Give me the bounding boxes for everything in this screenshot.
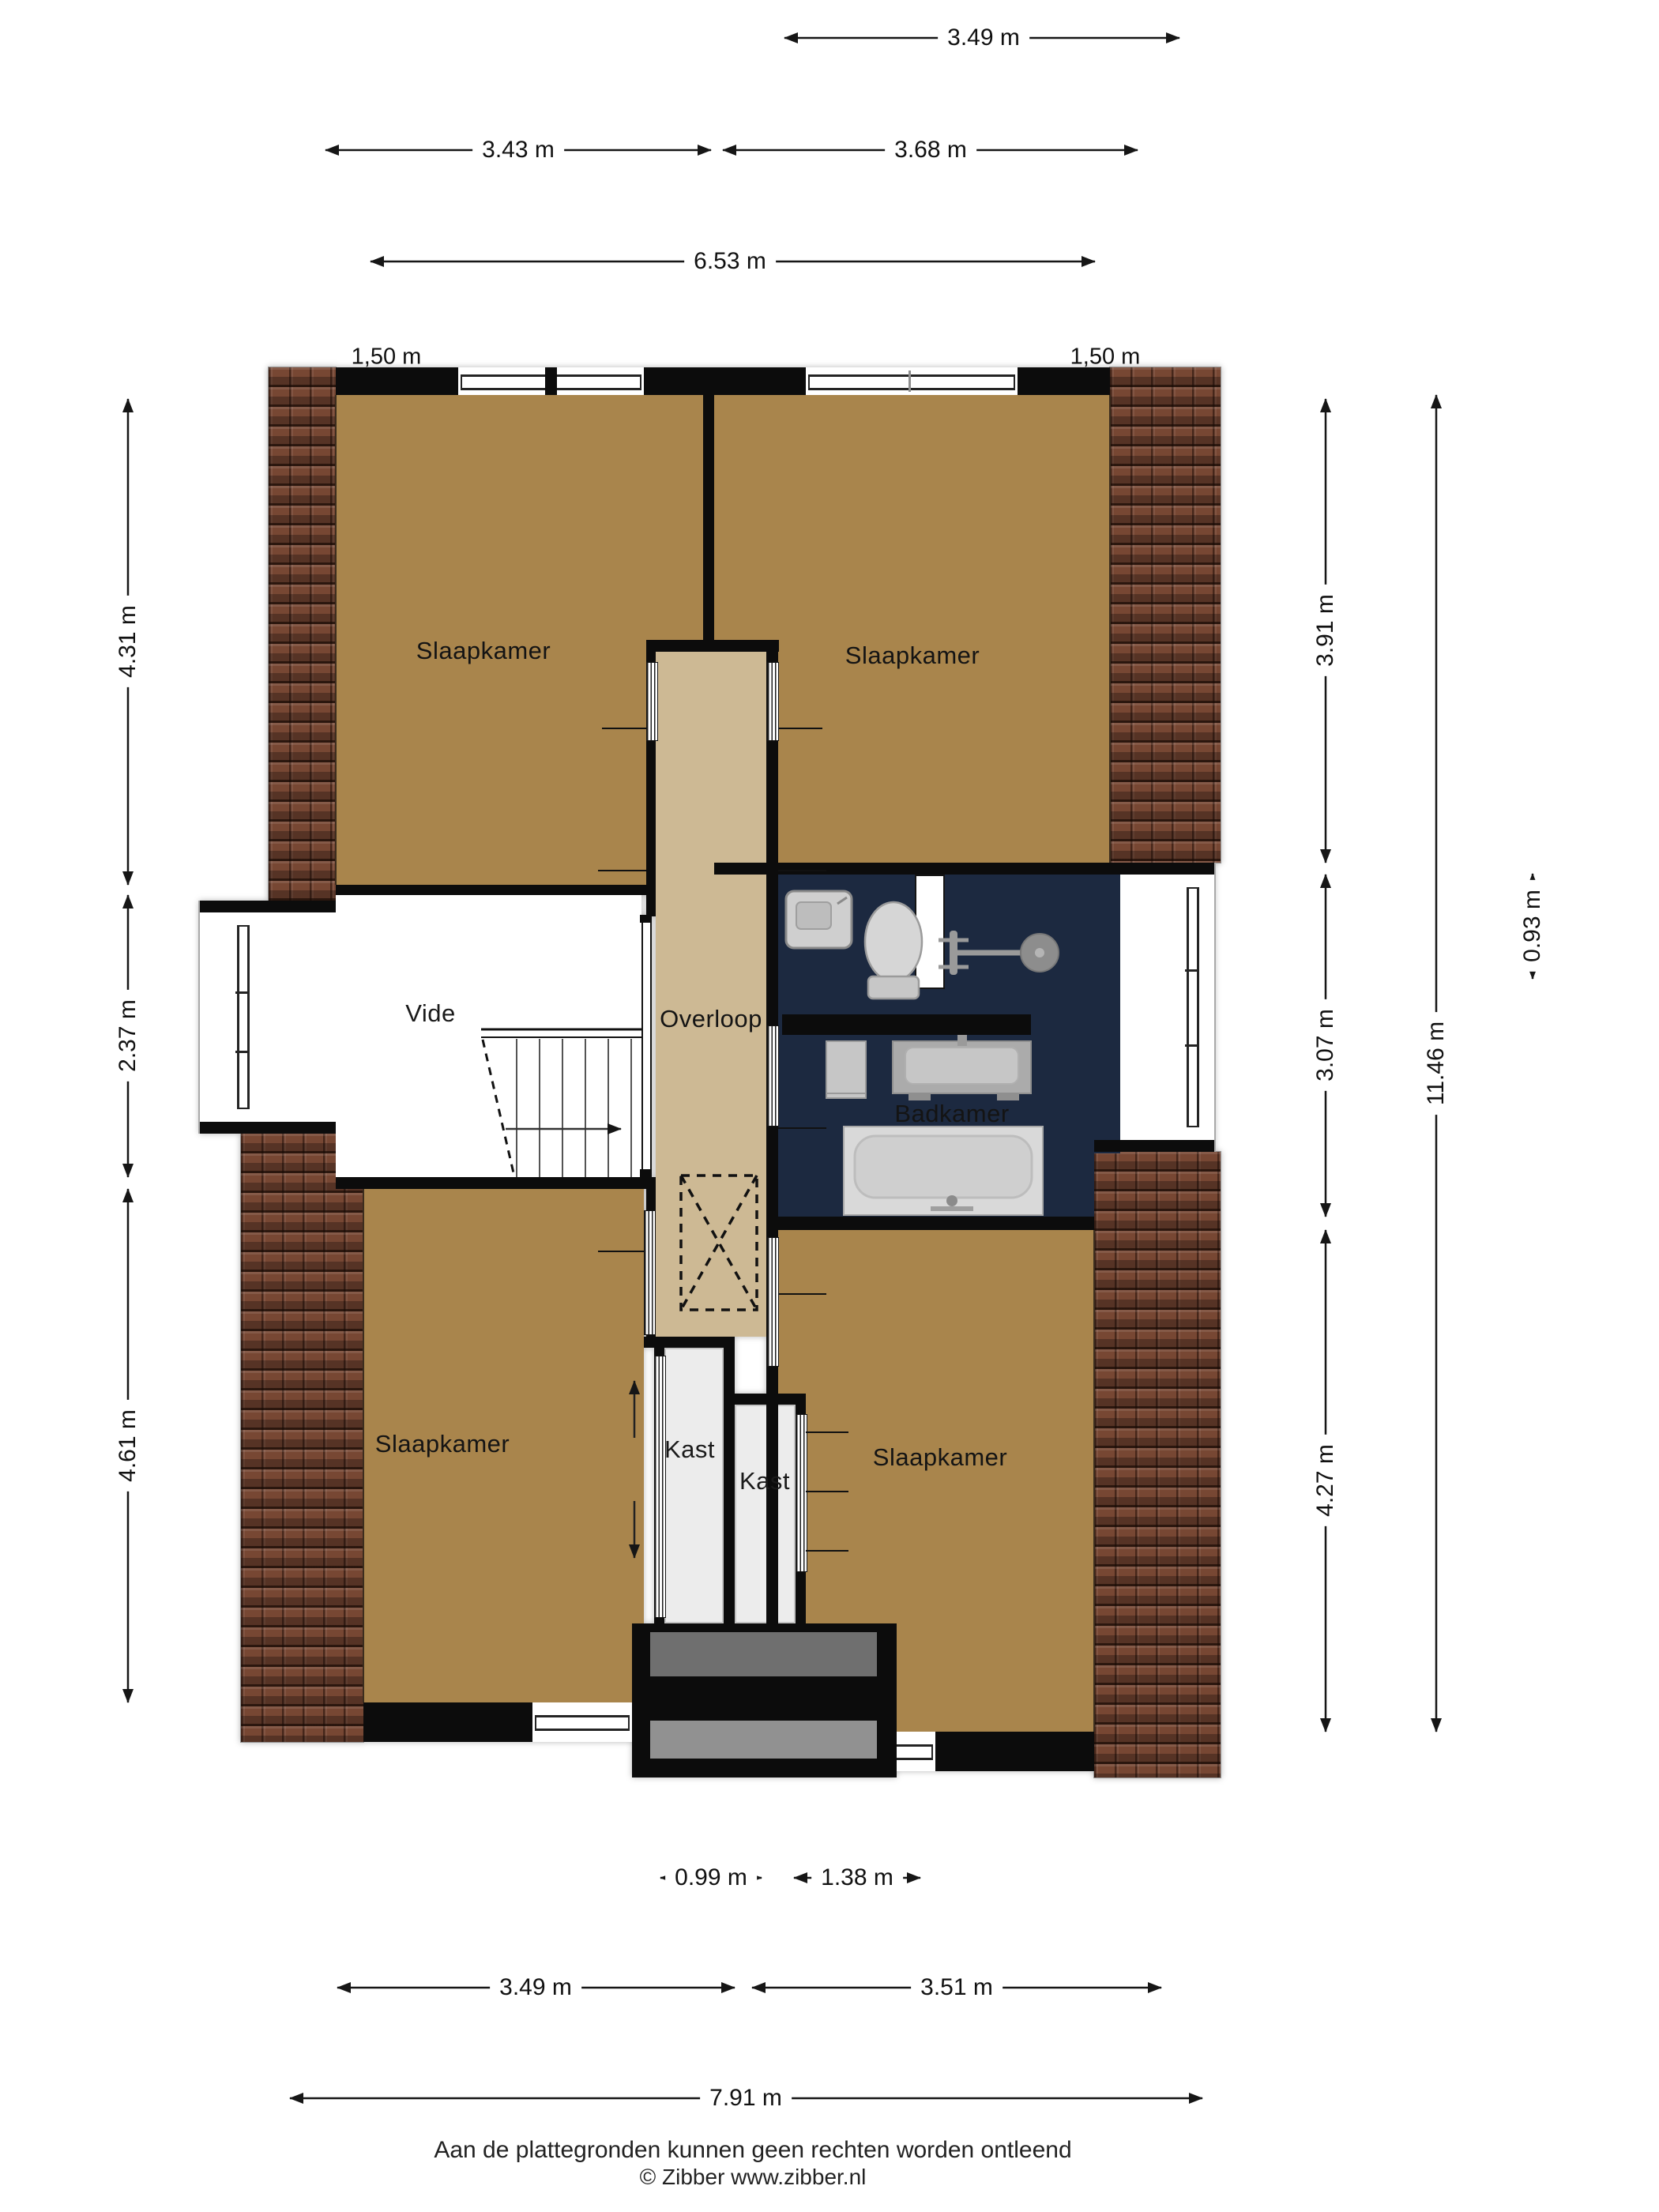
- footer-disclaimer: Aan de plattegronden kunnen geen rechten…: [434, 2137, 1071, 2164]
- dim-bottom-138: 1.38 m: [811, 1864, 903, 1892]
- room-label-slaapkamer-bottom-left: Slaapkamer: [375, 1430, 510, 1458]
- room-label-kast-right: Kast: [739, 1467, 790, 1495]
- dim-knee-right: 1,50 m: [1070, 344, 1141, 371]
- dim-right-093: 0.93 m: [1519, 880, 1547, 972]
- dim-top-349: 3.49 m: [938, 24, 1029, 52]
- dim-right-307: 3.07 m: [1312, 999, 1340, 1091]
- footer-copyright: © Zibber www.zibber.nl: [640, 2165, 867, 2190]
- dim-right-391: 3.91 m: [1312, 585, 1340, 676]
- dim-bottom-791: 7.91 m: [700, 2085, 792, 2112]
- room-label-kast-left: Kast: [664, 1435, 715, 1464]
- dim-left-237: 2.37 m: [115, 990, 142, 1082]
- bathtub: [844, 1127, 1043, 1215]
- room-label-slaapkamer-top-left: Slaapkamer: [416, 637, 551, 665]
- door-ticks: [598, 728, 848, 1551]
- room-label-slaapkamer-top-right: Slaapkamer: [845, 641, 980, 670]
- floorplan-page: 3.49 m 3.43 m 3.68 m 6.53 m 1,50 m 1,50 …: [0, 0, 1659, 2212]
- dim-top-343: 3.43 m: [472, 137, 564, 164]
- dim-bottom-349: 3.49 m: [490, 1974, 581, 2002]
- dim-bottom-351: 3.51 m: [911, 1974, 1003, 2002]
- dim-bottom-099: 0.99 m: [665, 1864, 757, 1892]
- dim-knee-left: 1,50 m: [352, 344, 422, 371]
- dim-left-431: 4.31 m: [115, 596, 142, 687]
- attic-hatch: [681, 1176, 757, 1310]
- room-label-slaapkamer-bottom-right: Slaapkamer: [873, 1443, 1007, 1472]
- room-label-badkamer: Badkamer: [894, 1100, 1009, 1128]
- dim-left-461: 4.61 m: [115, 1400, 142, 1492]
- room-label-overloop: Overloop: [660, 1005, 762, 1033]
- vanity-unit: [893, 1035, 1031, 1100]
- dim-right-427: 4.27 m: [1312, 1435, 1340, 1526]
- stairs: [481, 1029, 641, 1177]
- dim-top-368: 3.68 m: [885, 137, 976, 164]
- dim-right-1146: 11.46 m: [1423, 1012, 1450, 1115]
- toilet: [865, 902, 922, 999]
- room-label-vide: Vide: [405, 999, 456, 1028]
- bathroom-cabinet: [826, 1041, 866, 1098]
- washbasin: [786, 891, 852, 948]
- dim-top-653: 6.53 m: [684, 248, 776, 276]
- shower-fixture: [939, 931, 1059, 975]
